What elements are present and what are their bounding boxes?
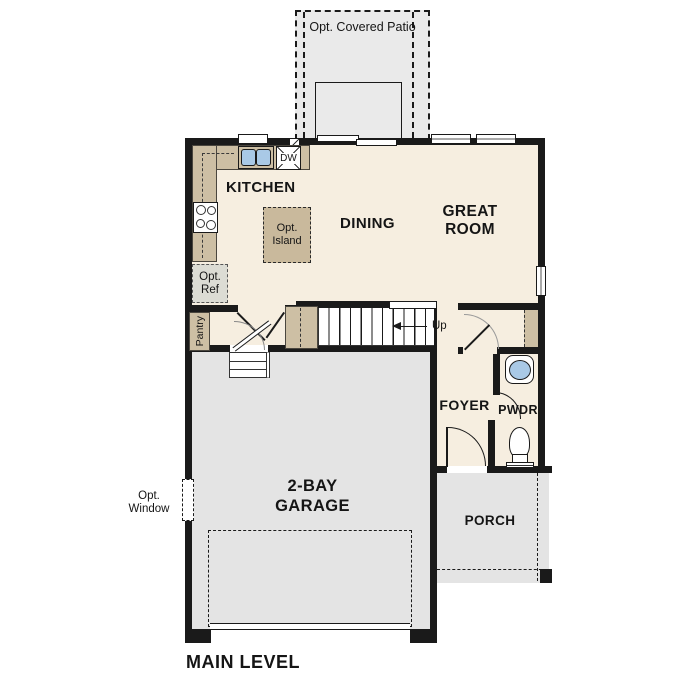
dishwasher-label: DW	[279, 153, 298, 164]
toilet-base	[506, 462, 534, 468]
powder-vanity	[505, 355, 534, 384]
great-room-side-window	[536, 266, 546, 296]
storage-dashed-line	[300, 308, 301, 347]
step-line	[230, 361, 266, 362]
kitchen-window	[238, 134, 268, 144]
patio-slab-outline	[315, 82, 402, 139]
patio-slider-panel-left	[317, 135, 359, 142]
optional-island: Opt. Island	[263, 207, 311, 263]
pantry-label: Pantry	[194, 316, 206, 346]
floor-plan: Opt. Covered Patio DW	[0, 0, 687, 687]
pantry-shelf: Pantry	[189, 312, 210, 351]
garage-door-header-dashed	[208, 530, 412, 627]
great-room-window-2	[476, 134, 516, 144]
wall-powder-left-lower	[488, 420, 495, 467]
opt-window-line1: Opt.	[138, 490, 160, 502]
kitchen-label: KITCHEN	[226, 179, 295, 196]
wall-powder-left-upper	[493, 347, 500, 395]
garage-door	[210, 623, 410, 630]
wall-pantry-top	[185, 305, 238, 312]
up-arrow-head-icon	[392, 322, 401, 330]
burner	[196, 219, 205, 228]
step-line	[230, 369, 266, 370]
optional-refrigerator: Opt. Ref	[192, 264, 228, 303]
great-room-window-1	[431, 134, 471, 144]
sink-basin-right	[256, 149, 271, 166]
up-arrow-line	[400, 326, 427, 327]
wall-left	[185, 138, 192, 643]
dining-label: DINING	[330, 215, 405, 232]
kitchen-sink	[238, 146, 274, 169]
porch-edge-dashed-bottom	[437, 569, 547, 570]
sink-basin-left	[241, 149, 256, 166]
optional-window-opening	[182, 479, 194, 521]
front-door-opening	[447, 466, 487, 473]
burner	[206, 220, 216, 230]
up-label: Up	[432, 320, 447, 333]
under-stair-storage	[285, 306, 318, 349]
great-room-label: GREAT ROOM	[432, 203, 508, 238]
patio-slider-panel-right	[356, 139, 397, 146]
ref-label-line2: Ref	[201, 284, 219, 297]
garage-corner-post-right	[410, 629, 437, 643]
garage-label: 2-BAY GARAGE	[240, 477, 385, 516]
burner	[196, 205, 206, 215]
toilet-base-line	[507, 465, 533, 466]
powder-sink-basin	[509, 360, 531, 380]
stair-railing	[389, 301, 437, 309]
stairs	[318, 308, 434, 346]
ref-label-line1: Opt.	[199, 271, 221, 284]
optional-window-label: Opt. Window	[118, 490, 180, 516]
garage-steps	[229, 352, 270, 378]
covered-patio-label: Opt. Covered Patio	[295, 21, 430, 34]
island-label-line1: Opt.	[277, 222, 298, 235]
opt-window-line2: Window	[129, 503, 170, 515]
cabinet-dashed-line-horizontal	[202, 153, 234, 154]
burner	[207, 206, 216, 215]
porch-corner-post	[540, 569, 552, 583]
garage-line1: 2-BAY	[288, 477, 338, 495]
plan-title: MAIN LEVEL	[186, 652, 300, 673]
porch-edge-dashed-right	[537, 473, 538, 581]
porch-label: PORCH	[455, 513, 525, 528]
closet-shelf	[524, 310, 538, 347]
garage-line2: GARAGE	[275, 497, 350, 515]
wall-garage-right	[430, 303, 437, 643]
great-room-line1: GREAT	[442, 203, 497, 220]
wall-closet-top	[458, 303, 543, 310]
great-room-line2: ROOM	[445, 221, 495, 238]
powder-label: PWDR	[494, 403, 542, 417]
garage-corner-post-left	[185, 629, 211, 643]
foyer-label: FOYER	[437, 397, 492, 413]
island-label-line2: Island	[272, 235, 301, 248]
dishwasher: DW	[276, 146, 301, 170]
range-stove	[193, 202, 218, 233]
